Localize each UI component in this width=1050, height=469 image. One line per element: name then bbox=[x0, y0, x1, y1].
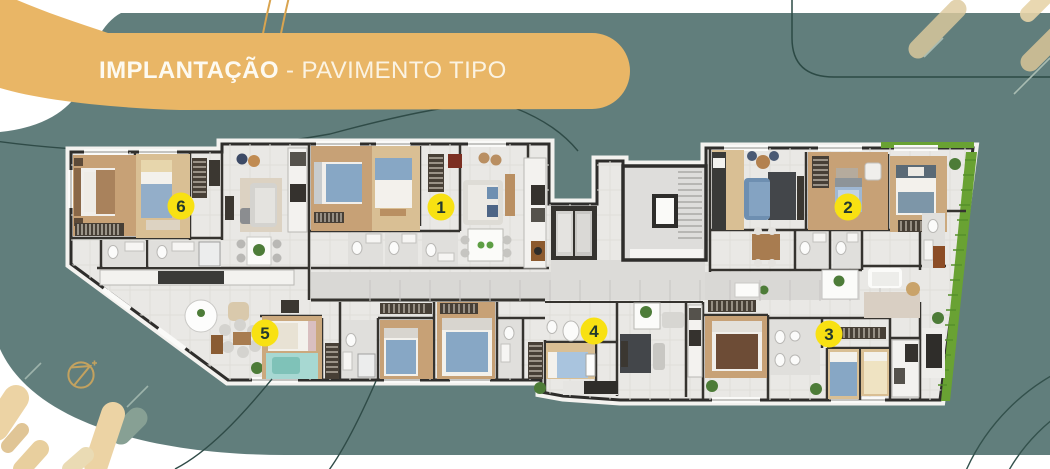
svg-text:5: 5 bbox=[260, 324, 269, 343]
svg-text:IMPLANTAÇÃO - PAVIMENTO TIPO: IMPLANTAÇÃO - PAVIMENTO TIPO bbox=[99, 56, 507, 84]
svg-text:3: 3 bbox=[824, 325, 833, 344]
svg-text:2: 2 bbox=[843, 198, 852, 217]
svg-text:1: 1 bbox=[436, 198, 445, 217]
svg-text:4: 4 bbox=[589, 322, 599, 341]
svg-text:6: 6 bbox=[176, 197, 185, 216]
